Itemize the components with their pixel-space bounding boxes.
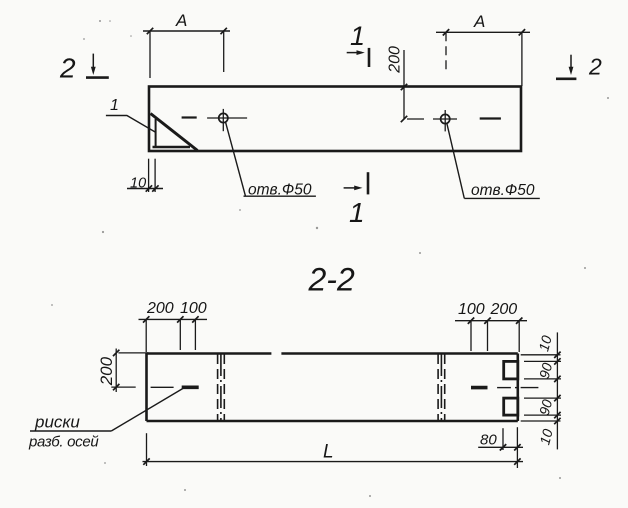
svg-text:80: 80 (480, 432, 497, 449)
svg-text:разб. осей: разб. осей (28, 434, 99, 451)
svg-text:2-2: 2-2 (308, 262, 355, 298)
svg-text:200: 200 (146, 300, 174, 317)
svg-text:200: 200 (386, 46, 403, 74)
svg-text:100: 100 (458, 301, 485, 318)
svg-text:10: 10 (535, 334, 555, 353)
svg-text:2: 2 (588, 54, 602, 80)
svg-text:200: 200 (490, 301, 518, 318)
svg-text:L: L (323, 442, 334, 463)
svg-text:отв.Ф50: отв.Ф50 (471, 182, 535, 199)
svg-text:90: 90 (536, 397, 556, 416)
svg-text:риски: риски (34, 413, 80, 432)
svg-text:1: 1 (349, 197, 365, 228)
svg-text:90: 90 (536, 361, 556, 380)
svg-text:10: 10 (130, 176, 146, 192)
svg-text:1: 1 (110, 97, 119, 114)
svg-text:100: 100 (180, 300, 207, 317)
svg-text:1: 1 (350, 21, 365, 51)
svg-text:отв.Ф50: отв.Ф50 (248, 182, 312, 199)
svg-text:A: A (175, 11, 187, 30)
svg-text:2: 2 (59, 53, 76, 84)
svg-text:200: 200 (97, 356, 116, 386)
svg-text:10: 10 (536, 427, 556, 446)
svg-text:A: A (473, 12, 485, 31)
